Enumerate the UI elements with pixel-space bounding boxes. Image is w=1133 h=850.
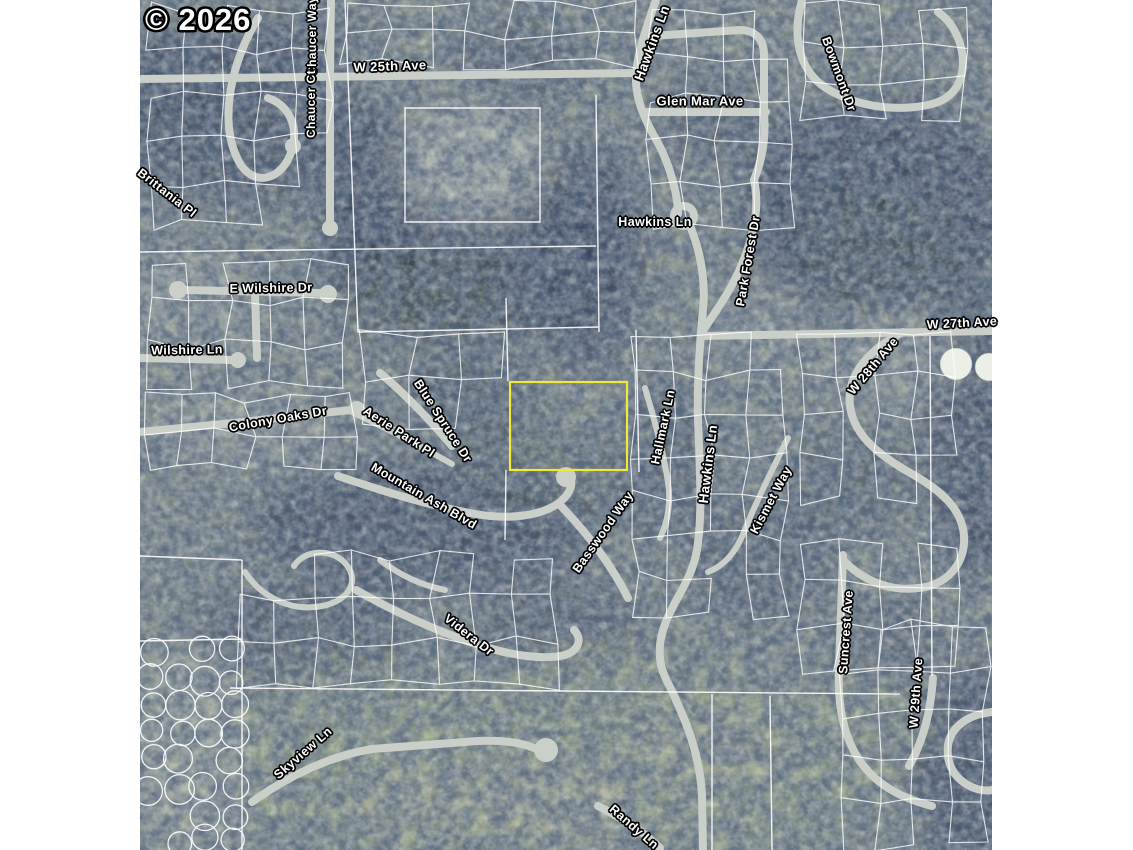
parcel-map-page: © 2026 Chaucer WayW 25th AveChaucer CtHa… [0, 0, 1133, 850]
aerial-map-canvas [0, 0, 1133, 850]
clearing-flecks-texture [140, 0, 992, 850]
